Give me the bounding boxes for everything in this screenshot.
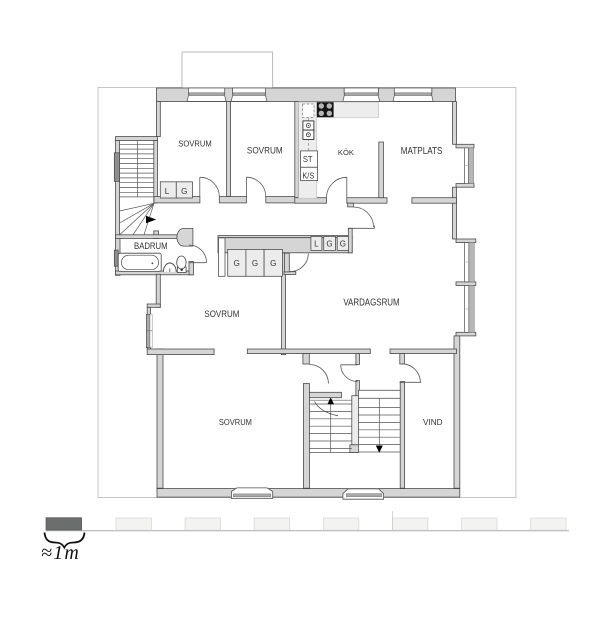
svg-text:VIND: VIND <box>423 418 443 427</box>
svg-text:G: G <box>181 187 187 196</box>
svg-text:KÖK: KÖK <box>338 148 354 157</box>
svg-text:VARDAGSRUM: VARDAGSRUM <box>343 297 399 308</box>
svg-text:SOVRUM: SOVRUM <box>219 417 252 427</box>
svg-text:ST: ST <box>303 154 313 164</box>
svg-text:G: G <box>326 239 332 248</box>
svg-text:G: G <box>340 239 346 248</box>
svg-text:SOVRUM: SOVRUM <box>247 145 283 156</box>
svg-text:MATPLATS: MATPLATS <box>401 146 443 157</box>
svg-text:SOVRUM: SOVRUM <box>178 139 212 148</box>
svg-text:BADRUM: BADRUM <box>134 241 168 251</box>
svg-text:G: G <box>252 259 258 268</box>
svg-text:K/S: K/S <box>302 171 314 180</box>
svg-text:G: G <box>234 259 240 268</box>
svg-text:L: L <box>165 187 170 196</box>
svg-text:G: G <box>270 259 276 268</box>
svg-text:≈1m: ≈1m <box>41 542 80 564</box>
svg-text:SOVRUM: SOVRUM <box>204 309 239 319</box>
svg-text:L: L <box>314 239 319 248</box>
